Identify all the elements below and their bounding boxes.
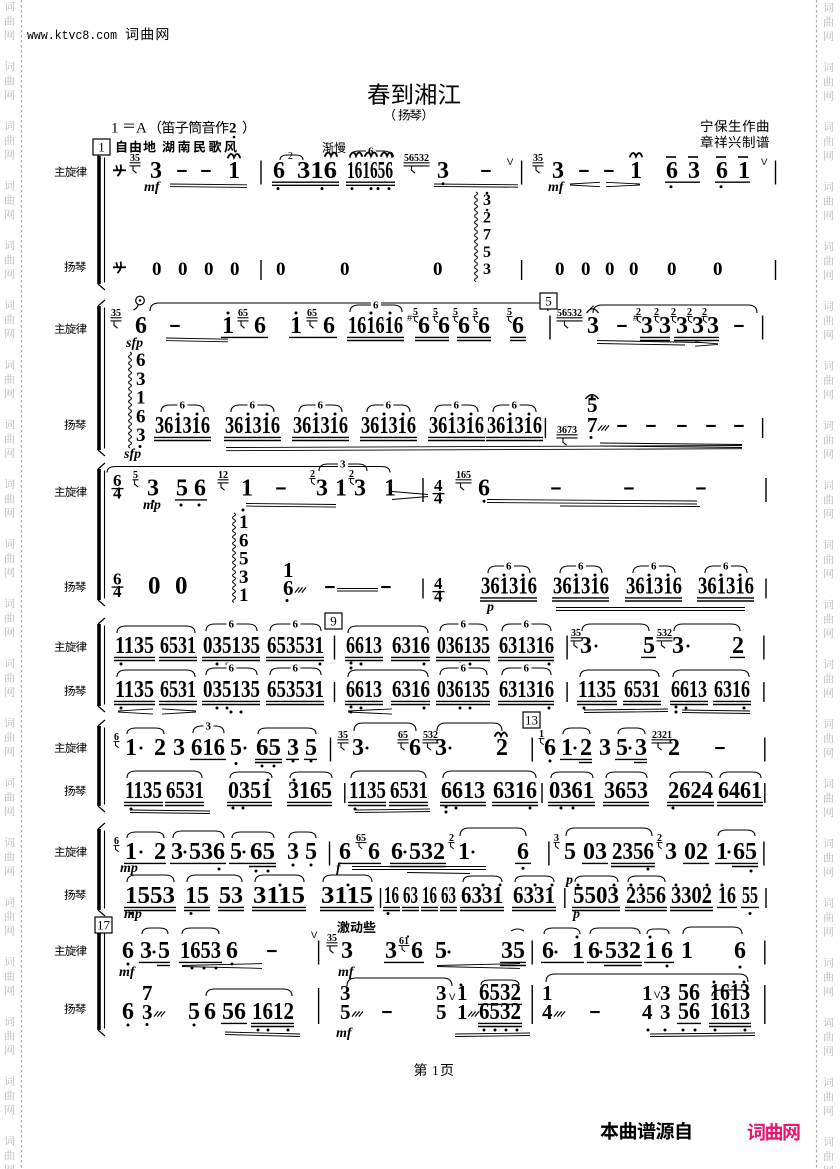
svg-text:mf: mf xyxy=(144,180,161,195)
svg-text:1: 1 xyxy=(222,313,234,339)
svg-text:03: 03 xyxy=(583,839,607,865)
svg-text:0: 0 xyxy=(276,259,286,280)
svg-text:3: 3 xyxy=(483,261,491,278)
svg-text:1: 1 xyxy=(125,735,137,761)
svg-text:6: 6 xyxy=(506,561,512,573)
svg-text:6: 6 xyxy=(588,938,600,964)
svg-text:6: 6 xyxy=(122,999,134,1025)
svg-text:3: 3 xyxy=(672,633,684,659)
svg-text:13: 13 xyxy=(525,713,538,728)
svg-text:631316: 631316 xyxy=(499,633,554,659)
svg-text:361316: 361316 xyxy=(698,574,754,600)
svg-text:2: 2 xyxy=(668,735,680,761)
svg-text:65: 65 xyxy=(250,839,275,865)
svg-text:5: 5 xyxy=(436,1000,447,1024)
svg-text:6: 6 xyxy=(578,561,584,573)
svg-text:036135: 036135 xyxy=(437,677,490,703)
svg-text:6331: 6331 xyxy=(461,883,503,909)
svg-text:5: 5 xyxy=(305,735,317,761)
svg-text:6316: 6316 xyxy=(392,677,430,703)
svg-text:2356: 2356 xyxy=(626,883,666,909)
svg-text:6: 6 xyxy=(386,400,392,412)
svg-text:1: 1 xyxy=(457,1000,468,1024)
svg-text:361316: 361316 xyxy=(481,574,537,600)
svg-text:6: 6 xyxy=(524,619,530,631)
svg-text:6: 6 xyxy=(409,735,421,761)
svg-text:0: 0 xyxy=(667,259,677,280)
svg-text:4: 4 xyxy=(434,489,443,508)
svg-text:6: 6 xyxy=(544,735,556,761)
svg-text:56: 56 xyxy=(678,999,700,1025)
svg-text:3: 3 xyxy=(635,735,647,761)
svg-text:1135: 1135 xyxy=(125,778,162,804)
svg-text:3: 3 xyxy=(287,735,299,761)
svg-text:6: 6 xyxy=(273,158,285,184)
svg-text:6: 6 xyxy=(418,313,430,339)
svg-text:631316: 631316 xyxy=(499,677,554,703)
svg-text:3: 3 xyxy=(660,1000,671,1024)
svg-text:1: 1 xyxy=(716,839,728,865)
svg-text:6613: 6613 xyxy=(441,778,485,804)
svg-text:6: 6 xyxy=(283,576,294,600)
svg-text:1: 1 xyxy=(572,938,584,964)
svg-text:2: 2 xyxy=(154,735,166,761)
svg-text:0: 0 xyxy=(433,259,443,280)
svg-text:1135: 1135 xyxy=(578,677,616,703)
svg-text:9: 9 xyxy=(330,614,337,629)
svg-text:6: 6 xyxy=(254,313,266,339)
svg-text:6461: 6461 xyxy=(718,778,762,804)
svg-text:161656: 161656 xyxy=(347,158,393,184)
svg-text:63: 63 xyxy=(403,883,418,909)
svg-text:2: 2 xyxy=(732,633,744,659)
svg-text:361316: 361316 xyxy=(487,413,542,439)
svg-text:6316: 6316 xyxy=(714,677,750,703)
svg-text:6: 6 xyxy=(293,619,299,631)
svg-text:1: 1 xyxy=(432,1063,439,1078)
svg-text:mp: mp xyxy=(124,907,142,922)
svg-text:3: 3 xyxy=(341,938,353,964)
svg-text:361316: 361316 xyxy=(225,413,280,439)
svg-text:6: 6 xyxy=(661,938,673,964)
svg-text:035135: 035135 xyxy=(203,633,260,659)
svg-text:6: 6 xyxy=(666,158,678,184)
svg-text:4: 4 xyxy=(434,587,443,606)
svg-text:6532: 6532 xyxy=(479,999,521,1025)
svg-text:V: V xyxy=(449,992,456,1003)
svg-text:65: 65 xyxy=(733,839,757,865)
svg-text:1653: 1653 xyxy=(180,938,221,964)
svg-text:sfp: sfp xyxy=(123,447,141,462)
svg-text:3: 3 xyxy=(173,735,185,761)
svg-text:mf: mf xyxy=(119,965,136,980)
svg-text:1553: 1553 xyxy=(125,883,175,909)
svg-text:3: 3 xyxy=(171,839,183,865)
svg-text:5: 5 xyxy=(230,735,242,761)
svg-text:5: 5 xyxy=(176,476,188,502)
svg-text:6: 6 xyxy=(250,400,256,412)
svg-text:6: 6 xyxy=(229,663,235,675)
svg-text:6: 6 xyxy=(723,561,729,573)
svg-text:6331: 6331 xyxy=(513,883,555,909)
svg-text:35: 35 xyxy=(501,938,525,964)
svg-text:2: 2 xyxy=(288,151,293,162)
svg-text:4: 4 xyxy=(113,484,122,503)
svg-text:6: 6 xyxy=(339,839,351,865)
svg-text:1: 1 xyxy=(738,158,750,184)
svg-text:mf: mf xyxy=(336,1026,353,1041)
svg-text:A: A xyxy=(136,121,147,137)
svg-text:6: 6 xyxy=(512,313,524,339)
svg-text:1: 1 xyxy=(681,938,693,964)
svg-text:3: 3 xyxy=(437,158,449,184)
svg-text:mf: mf xyxy=(338,965,355,980)
svg-text:316: 316 xyxy=(297,158,337,184)
svg-text:532: 532 xyxy=(605,938,641,964)
svg-text:1135: 1135 xyxy=(115,633,154,659)
svg-text:3: 3 xyxy=(385,938,397,964)
svg-text:4: 4 xyxy=(642,1000,653,1024)
svg-text:35: 35 xyxy=(338,729,348,741)
svg-text:0: 0 xyxy=(555,259,565,280)
svg-text:0: 0 xyxy=(178,259,188,280)
svg-text:0: 0 xyxy=(175,573,188,600)
svg-text:6: 6 xyxy=(226,938,238,964)
svg-text:3673: 3673 xyxy=(557,424,577,436)
svg-text:1: 1 xyxy=(111,121,119,137)
svg-text:4: 4 xyxy=(113,582,122,601)
svg-text:#: # xyxy=(407,313,412,323)
svg-text:16: 16 xyxy=(384,883,399,909)
svg-text:0: 0 xyxy=(629,259,639,280)
svg-text:2624: 2624 xyxy=(668,778,713,804)
svg-text:6: 6 xyxy=(458,313,470,339)
svg-text:6: 6 xyxy=(323,313,335,339)
svg-text:mf: mf xyxy=(548,180,565,195)
svg-text:2: 2 xyxy=(483,209,491,226)
svg-text:536: 536 xyxy=(189,839,225,865)
svg-text:6: 6 xyxy=(204,999,216,1025)
svg-text:sfp: sfp xyxy=(125,336,143,351)
svg-text:3: 3 xyxy=(483,192,491,209)
svg-text:361316: 361316 xyxy=(155,413,210,439)
svg-text:6: 6 xyxy=(438,313,450,339)
svg-text:6: 6 xyxy=(542,938,554,964)
svg-text:56532: 56532 xyxy=(404,152,429,164)
svg-text:0: 0 xyxy=(148,573,161,600)
svg-text:0: 0 xyxy=(713,259,723,280)
svg-text:3: 3 xyxy=(136,425,146,446)
svg-text:3: 3 xyxy=(316,476,328,502)
svg-text:3: 3 xyxy=(354,476,366,502)
svg-text:www.ktvc8.com: www.ktvc8.com xyxy=(27,29,117,43)
svg-text:35: 35 xyxy=(111,307,121,319)
svg-text:6531: 6531 xyxy=(160,633,196,659)
svg-text:5: 5 xyxy=(188,999,200,1025)
svg-text:1: 1 xyxy=(384,476,396,502)
svg-text:65: 65 xyxy=(307,307,317,319)
svg-text:0: 0 xyxy=(230,259,240,280)
svg-text:161616: 161616 xyxy=(348,313,403,339)
svg-text:3: 3 xyxy=(707,313,719,339)
svg-text:1135: 1135 xyxy=(349,778,386,804)
svg-text:3302: 3302 xyxy=(671,883,712,909)
svg-text:12: 12 xyxy=(218,469,228,481)
svg-text:17: 17 xyxy=(97,918,111,933)
svg-text:6: 6 xyxy=(373,300,379,312)
svg-text:56: 56 xyxy=(222,999,246,1025)
svg-text:532: 532 xyxy=(657,627,672,639)
svg-text:5: 5 xyxy=(133,469,138,481)
svg-text:6531: 6531 xyxy=(160,677,196,703)
svg-text:6: 6 xyxy=(194,476,206,502)
svg-text:1: 1 xyxy=(241,476,253,502)
svg-text:6: 6 xyxy=(411,938,423,964)
svg-text:3: 3 xyxy=(580,633,592,659)
svg-text:3: 3 xyxy=(435,735,447,761)
svg-text:361316: 361316 xyxy=(361,413,416,439)
svg-text:6: 6 xyxy=(229,619,235,631)
svg-text:2: 2 xyxy=(580,735,592,761)
svg-text:02: 02 xyxy=(684,839,708,865)
svg-text:V: V xyxy=(761,157,768,168)
svg-text:16: 16 xyxy=(422,883,437,909)
svg-text:6: 6 xyxy=(368,839,380,865)
svg-text:6: 6 xyxy=(512,400,518,412)
svg-text:3653: 3653 xyxy=(604,778,648,804)
svg-text:5: 5 xyxy=(564,839,576,865)
svg-text:3: 3 xyxy=(140,938,152,964)
svg-text:3: 3 xyxy=(641,313,653,339)
svg-text:035135: 035135 xyxy=(203,677,260,703)
svg-text:6: 6 xyxy=(478,476,490,502)
svg-text:2: 2 xyxy=(229,121,237,137)
svg-text:5: 5 xyxy=(230,839,242,865)
svg-text:6: 6 xyxy=(180,400,186,412)
svg-text:0: 0 xyxy=(581,259,591,280)
svg-text:0361: 0361 xyxy=(549,778,594,804)
svg-text:6: 6 xyxy=(716,158,728,184)
svg-text:V: V xyxy=(507,157,514,168)
svg-text:5: 5 xyxy=(158,938,170,964)
svg-text:63: 63 xyxy=(441,883,456,909)
svg-text:653531: 653531 xyxy=(267,633,324,659)
svg-text:5: 5 xyxy=(483,244,491,261)
svg-text:0351: 0351 xyxy=(228,778,272,804)
svg-text:1: 1 xyxy=(239,585,249,606)
svg-text:65: 65 xyxy=(256,735,281,761)
svg-text:6531: 6531 xyxy=(390,778,428,804)
svg-text:361316: 361316 xyxy=(553,574,609,600)
svg-text:6: 6 xyxy=(517,839,529,865)
svg-text:6531: 6531 xyxy=(166,778,204,804)
svg-text:0: 0 xyxy=(204,259,214,280)
svg-text:3: 3 xyxy=(587,313,599,339)
svg-text:1: 1 xyxy=(458,839,470,865)
svg-text:6316: 6316 xyxy=(493,778,537,804)
svg-text:5: 5 xyxy=(305,839,317,865)
svg-text:1613: 1613 xyxy=(710,999,750,1025)
svg-text:3: 3 xyxy=(599,735,611,761)
svg-text:6: 6 xyxy=(293,663,299,675)
svg-text:0: 0 xyxy=(605,259,615,280)
svg-text:5: 5 xyxy=(616,735,628,761)
svg-text:35: 35 xyxy=(327,932,337,944)
svg-text:2356: 2356 xyxy=(612,839,654,865)
svg-text:5: 5 xyxy=(545,294,552,309)
svg-text:1: 1 xyxy=(98,140,105,155)
svg-text:3: 3 xyxy=(287,839,299,865)
svg-text:6: 6 xyxy=(461,619,467,631)
svg-text:5: 5 xyxy=(435,938,447,964)
svg-text:361316: 361316 xyxy=(429,413,484,439)
svg-text:6: 6 xyxy=(651,561,657,573)
svg-text:V: V xyxy=(311,930,318,941)
svg-text:3: 3 xyxy=(659,313,671,339)
svg-text:6316: 6316 xyxy=(392,633,430,659)
svg-text:6: 6 xyxy=(524,663,530,675)
svg-text:532: 532 xyxy=(409,839,445,865)
svg-text:35: 35 xyxy=(130,152,140,164)
svg-text:3: 3 xyxy=(340,459,346,471)
svg-text:3: 3 xyxy=(142,1000,153,1024)
svg-text:6: 6 xyxy=(391,839,403,865)
svg-text:3115: 3115 xyxy=(321,883,373,909)
svg-text:6531: 6531 xyxy=(624,677,660,703)
svg-text:3165: 3165 xyxy=(288,778,332,804)
svg-text:16: 16 xyxy=(718,883,736,909)
svg-text:1612: 1612 xyxy=(252,999,294,1025)
svg-text:2: 2 xyxy=(154,839,166,865)
svg-text:mp: mp xyxy=(143,498,161,513)
svg-text:3115: 3115 xyxy=(253,883,305,909)
svg-text:65: 65 xyxy=(398,729,408,741)
svg-text:6: 6 xyxy=(122,938,134,964)
svg-text:p: p xyxy=(565,873,573,888)
svg-text:6: 6 xyxy=(454,400,460,412)
svg-text:361316: 361316 xyxy=(626,574,682,600)
svg-text:1: 1 xyxy=(228,158,240,184)
svg-text:35: 35 xyxy=(533,152,543,164)
svg-text:616: 616 xyxy=(191,735,225,761)
svg-text:361316: 361316 xyxy=(293,413,348,439)
svg-text:6: 6 xyxy=(478,313,490,339)
svg-text:5503: 5503 xyxy=(573,883,619,909)
svg-text:1: 1 xyxy=(561,735,573,761)
svg-text:653531: 653531 xyxy=(267,677,324,703)
svg-text:p: p xyxy=(572,907,580,922)
svg-text:0: 0 xyxy=(340,259,350,280)
svg-text:5: 5 xyxy=(340,1000,351,1024)
svg-text:mp: mp xyxy=(120,861,138,876)
svg-text:6: 6 xyxy=(734,938,746,964)
svg-text:1135: 1135 xyxy=(115,677,154,703)
svg-text:3: 3 xyxy=(206,721,212,733)
svg-text:2: 2 xyxy=(496,735,508,761)
svg-text:1: 1 xyxy=(335,476,347,502)
svg-text:036135: 036135 xyxy=(437,633,490,659)
svg-text:53: 53 xyxy=(219,883,243,909)
svg-text:165: 165 xyxy=(456,469,471,481)
svg-text:3: 3 xyxy=(665,839,677,865)
svg-text:7: 7 xyxy=(483,227,491,244)
svg-text:p: p xyxy=(486,600,494,615)
svg-text:0: 0 xyxy=(152,259,162,280)
svg-text:56532: 56532 xyxy=(557,307,582,319)
svg-text:1: 1 xyxy=(645,938,657,964)
svg-text:6: 6 xyxy=(461,663,467,675)
svg-text:6613: 6613 xyxy=(671,677,707,703)
svg-text:55: 55 xyxy=(742,883,758,909)
svg-text:65: 65 xyxy=(238,307,248,319)
svg-text:3: 3 xyxy=(352,735,364,761)
svg-text:1: 1 xyxy=(290,313,302,339)
svg-text:7: 7 xyxy=(587,413,598,437)
svg-text:5: 5 xyxy=(643,633,655,659)
svg-text:3: 3 xyxy=(688,158,700,184)
svg-text:6613: 6613 xyxy=(346,677,382,703)
svg-text:15: 15 xyxy=(185,883,209,909)
svg-text:6: 6 xyxy=(318,400,324,412)
svg-text:6613: 6613 xyxy=(346,633,382,659)
svg-text:4: 4 xyxy=(542,1000,553,1024)
svg-text:1: 1 xyxy=(630,158,642,184)
